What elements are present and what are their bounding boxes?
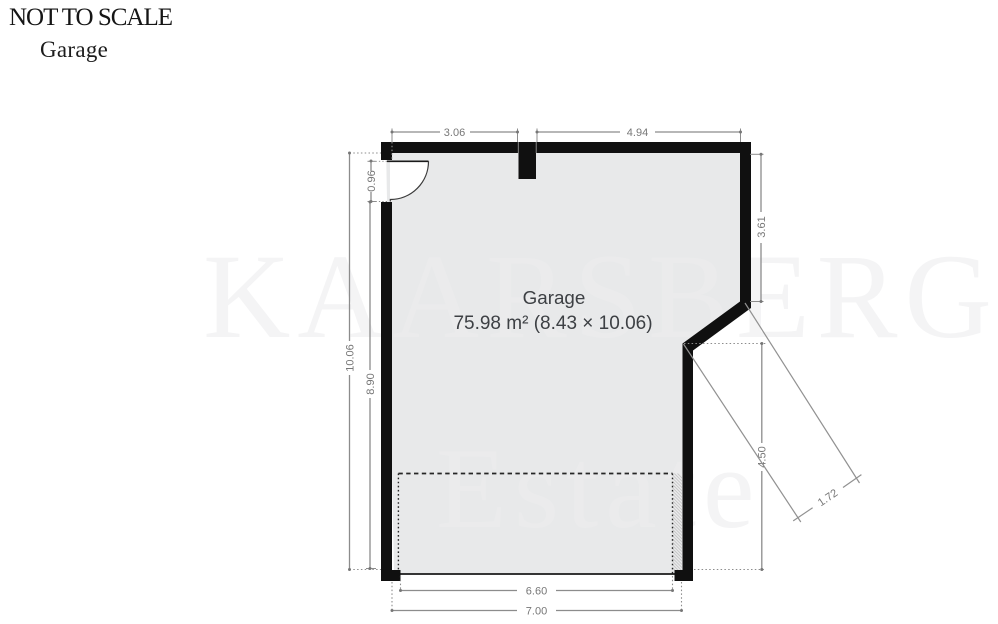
- svg-text:NOT TO SCALE: NOT TO SCALE: [9, 4, 173, 31]
- svg-text:1.72: 1.72: [816, 487, 840, 509]
- svg-text:Garage: Garage: [40, 37, 108, 62]
- svg-text:6.60: 6.60: [526, 585, 547, 597]
- svg-text:3.61: 3.61: [756, 216, 768, 237]
- svg-text:75.98 m² (8.43 × 10.06): 75.98 m² (8.43 × 10.06): [453, 313, 652, 334]
- svg-text:8.90: 8.90: [365, 373, 377, 394]
- svg-text:7.00: 7.00: [526, 605, 547, 617]
- svg-text:Garage: Garage: [523, 287, 586, 308]
- svg-text:10.06: 10.06: [344, 344, 356, 372]
- svg-text:3.06: 3.06: [444, 127, 465, 139]
- svg-text:4.94: 4.94: [627, 127, 648, 139]
- svg-text:0.96: 0.96: [366, 170, 378, 191]
